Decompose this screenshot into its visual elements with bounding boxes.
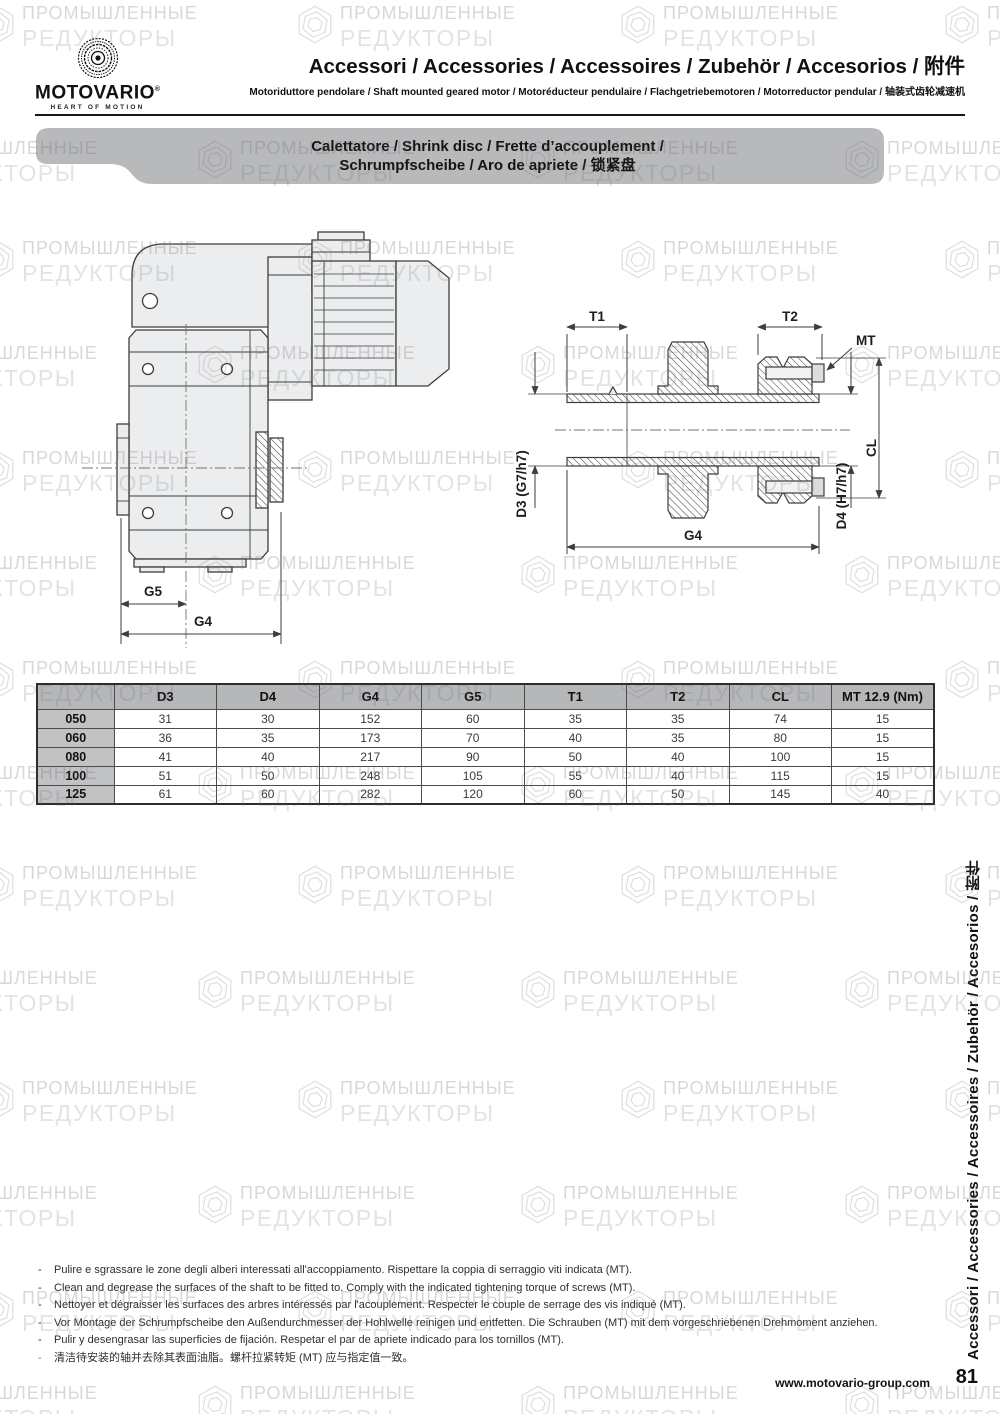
catalog-page: MOTOVARIO® HEART OF MOTION Accessori / A… xyxy=(0,0,1000,1414)
watermark-text-line1: ПРОМЫШЛЕННЫЕ xyxy=(22,1,198,25)
hexagon-spiral-icon xyxy=(841,966,883,1013)
watermark-text-line1: ПРОМЫШЛЕННЫЕ xyxy=(22,861,198,885)
dimension-value-cell: 40 xyxy=(832,785,935,804)
watermark-text-line1: ПРОМЫШЛЕННЫЕ xyxy=(663,861,839,885)
watermark-text-line2: РЕДУКТОРЫ xyxy=(22,1100,198,1127)
hexagon-spiral-icon xyxy=(294,861,336,908)
hexagon-spiral-icon xyxy=(0,1076,18,1123)
watermark: ПРОМЫШЛЕННЫЕРЕДУКТОРЫ xyxy=(941,1,1000,52)
dim-label-mt: MT xyxy=(856,333,876,348)
watermark-text-line2: РЕДУКТОРЫ xyxy=(0,990,98,1017)
page-subtitle: Motoriduttore pendolare / Shaft mounted … xyxy=(249,83,965,98)
dim-label-d3: D3 (G7/h7) xyxy=(514,450,529,518)
watermark: ПРОМЫШЛЕННЫЕРЕДУКТОРЫ xyxy=(0,1181,98,1232)
watermark-text-line1: ПРОМЫШЛЕННЫЕ xyxy=(22,1076,198,1100)
watermark-text-line1: ПРОМЫШЛЕННЫЕ xyxy=(987,1286,1000,1310)
watermark: ПРОМЫШЛЕННЫЕРЕДУКТОРЫ xyxy=(617,1076,839,1127)
mounting-notes: -Pulire e sgrassare le zone degli alberi… xyxy=(38,1262,918,1368)
hexagon-spiral-icon xyxy=(941,236,983,283)
note-line: -Pulire e sgrassare le zone degli alberi… xyxy=(38,1262,918,1280)
dimension-value-cell: 217 xyxy=(319,747,422,766)
table-header-row: D3D4G4G5T1T2CLMT 12.9 (Nm) xyxy=(37,684,934,709)
dimension-value-cell: 100 xyxy=(729,747,832,766)
watermark-text-line1: ПРОМЫШЛЕННЫЕ xyxy=(0,1381,98,1405)
watermark-text-line2: РЕДУКТОРЫ xyxy=(0,1405,98,1414)
hexagon-spiral-icon xyxy=(617,1076,659,1123)
hexagon-spiral-icon xyxy=(617,861,659,908)
dimension-value-cell: 50 xyxy=(524,747,627,766)
hexagon-spiral-icon xyxy=(517,1181,559,1228)
watermark-text-line2: РЕДУКТОРЫ xyxy=(987,1310,1000,1337)
table-corner-cell xyxy=(37,684,114,709)
dimension-value-cell: 15 xyxy=(832,709,935,728)
watermark: ПРОМЫШЛЕННЫЕРЕДУКТОРЫ xyxy=(0,966,98,1017)
watermark-text-line1: ПРОМЫШЛЕННЫЕ xyxy=(563,1181,739,1205)
page-number: 81 xyxy=(956,1366,978,1389)
watermark: ПРОМЫШЛЕННЫЕРЕДУКТОРЫ xyxy=(517,1381,739,1414)
note-line: -Vor Montage der Schrumpfscheibe den Auß… xyxy=(38,1315,918,1333)
watermark: ПРОМЫШЛЕННЫЕРЕДУКТОРЫ xyxy=(0,1076,198,1127)
dimension-value-cell: 74 xyxy=(729,709,832,728)
dimension-value-cell: 51 xyxy=(114,766,217,785)
watermark-text-line1: ПРОМЫШЛЕННЫЕ xyxy=(563,1381,739,1405)
table-row: 06036351737040358015 xyxy=(37,728,934,747)
watermark: ПРОМЫШЛЕННЫЕРЕДУКТОРЫ xyxy=(617,1,839,52)
column-header: MT 12.9 (Nm) xyxy=(832,684,935,709)
watermark-text-line2: РЕДУКТОРЫ xyxy=(663,1100,839,1127)
note-line: -清洁待安装的轴并去除其表面油脂。螺杆拉紧转矩 (MT) 应与指定值一致。 xyxy=(38,1350,918,1368)
column-header: D3 xyxy=(114,684,217,709)
dim-label-g5: G5 xyxy=(144,584,163,599)
banner-title-line1: Calettatore / Shrink disc / Frette d’acc… xyxy=(311,137,664,157)
watermark-text-line2: РЕДУКТОРЫ xyxy=(0,1205,98,1232)
note-dash: - xyxy=(38,1297,54,1315)
hexagon-spiral-icon xyxy=(0,1286,18,1333)
watermark-text-line2: РЕДУКТОРЫ xyxy=(887,1405,1000,1414)
row-size-label: 080 xyxy=(37,747,114,766)
dimension-value-cell: 40 xyxy=(627,747,730,766)
watermark: ПРОМЫШЛЕННЫЕРЕДУКТОРЫ xyxy=(194,1181,416,1232)
dim-label-g4-left: G4 xyxy=(194,614,213,629)
page-title: Accessori / Accessories / Accessoires / … xyxy=(249,54,965,80)
watermark-text-line2: РЕДУКТОРЫ xyxy=(987,1100,1000,1127)
column-header: G5 xyxy=(422,684,525,709)
watermark-text-line1: ПРОМЫШЛЕННЫЕ xyxy=(663,1,839,25)
dim-label-cl: CL xyxy=(864,439,879,457)
dimension-value-cell: 70 xyxy=(422,728,525,747)
watermark: ПРОМЫШЛЕННЫЕРЕДУКТОРЫ xyxy=(194,966,416,1017)
row-size-label: 050 xyxy=(37,709,114,728)
watermark-text-line1: ПРОМЫШЛЕННЫЕ xyxy=(987,1,1000,25)
note-dash: - xyxy=(38,1262,54,1280)
watermark-text-line2: РЕДУКТОРЫ xyxy=(240,1405,416,1414)
column-header: T2 xyxy=(627,684,730,709)
table-row: 1256160282120605014540 xyxy=(37,785,934,804)
dimension-value-cell: 55 xyxy=(524,766,627,785)
dimension-value-cell: 248 xyxy=(319,766,422,785)
note-text: Pulire e sgrassare le zone degli alberi … xyxy=(54,1264,632,1276)
note-line: -Pulir y desengrasar las superficies de … xyxy=(38,1332,918,1350)
watermark: ПРОМЫШЛЕННЫЕРЕДУКТОРЫ xyxy=(294,1,516,52)
watermark-text-line1: ПРОМЫШЛЕННЫЕ xyxy=(563,966,739,990)
dimension-value-cell: 145 xyxy=(729,785,832,804)
watermark-text-line2: РЕДУКТОРЫ xyxy=(563,990,739,1017)
dimension-value-cell: 31 xyxy=(114,709,217,728)
dimension-value-cell: 80 xyxy=(729,728,832,747)
dimension-value-cell: 120 xyxy=(422,785,525,804)
dimension-value-cell: 50 xyxy=(217,766,320,785)
hexagon-spiral-icon xyxy=(294,1,336,48)
row-size-label: 100 xyxy=(37,766,114,785)
header-divider xyxy=(35,114,965,116)
watermark: ПРОМЫШЛЕННЫЕРЕДУКТОРЫ xyxy=(294,861,516,912)
dimension-value-cell: 30 xyxy=(217,709,320,728)
watermark-text-line2: РЕДУКТОРЫ xyxy=(987,680,1000,707)
column-header: D4 xyxy=(217,684,320,709)
note-dash: - xyxy=(38,1350,54,1368)
watermark-text-line1: ПРОМЫШЛЕННЫЕ xyxy=(987,236,1000,260)
note-text: Pulir y desengrasar las superficies de f… xyxy=(54,1334,564,1346)
dimension-value-cell: 35 xyxy=(524,709,627,728)
hexagon-spiral-icon xyxy=(0,236,18,283)
watermark-text-line1: ПРОМЫШЛЕННЫЕ xyxy=(0,1181,98,1205)
dim-label-d4: D4 (H7/h7) xyxy=(834,463,849,530)
watermark-text-line1: ПРОМЫШЛЕННЫЕ xyxy=(987,656,1000,680)
gearmotor-side-view xyxy=(117,232,449,572)
hexagon-spiral-icon xyxy=(617,1,659,48)
hexagon-spiral-icon xyxy=(0,446,18,493)
motovario-logo: MOTOVARIO® HEART OF MOTION xyxy=(35,36,160,111)
dimension-value-cell: 282 xyxy=(319,785,422,804)
hexagon-spiral-icon xyxy=(941,656,983,703)
dimension-value-cell: 35 xyxy=(217,728,320,747)
note-dash: - xyxy=(38,1280,54,1298)
watermark-text-line1: ПРОМЫШЛЕННЫЕ xyxy=(0,966,98,990)
dimension-value-cell: 15 xyxy=(832,747,935,766)
technical-drawing: G5 G4 xyxy=(60,200,940,670)
watermark-text-line1: ПРОМЫШЛЕННЫЕ xyxy=(340,861,516,885)
dimension-value-cell: 60 xyxy=(422,709,525,728)
watermark: ПРОМЫШЛЕННЫЕРЕДУКТОРЫ xyxy=(517,1181,739,1232)
registered-mark: ® xyxy=(155,86,161,93)
watermark-text-line2: РЕДУКТОРЫ xyxy=(22,885,198,912)
hexagon-spiral-icon xyxy=(194,1381,236,1414)
watermark-text-line2: РЕДУКТОРЫ xyxy=(887,160,1000,187)
dimension-value-cell: 90 xyxy=(422,747,525,766)
watermark-text-line1: ПРОМЫШЛЕННЫЕ xyxy=(340,1,516,25)
hexagon-spiral-icon xyxy=(0,656,18,703)
column-header: G4 xyxy=(319,684,422,709)
dimension-value-cell: 50 xyxy=(627,785,730,804)
hexagon-spiral-icon xyxy=(941,1,983,48)
dimensions-table: D3D4G4G5T1T2CLMT 12.9 (Nm) 0503130152603… xyxy=(36,683,935,805)
brand-tagline: HEART OF MOTION xyxy=(35,104,160,111)
dimension-value-cell: 40 xyxy=(524,728,627,747)
note-line: -Nettoyer et dégraisser les surfaces des… xyxy=(38,1297,918,1315)
watermark: ПРОМЫШЛЕННЫЕРЕДУКТОРЫ xyxy=(0,1381,98,1414)
note-line: -Clean and degrease the surfaces of the … xyxy=(38,1280,918,1298)
footer-website: www.motovario-group.com xyxy=(775,1376,930,1390)
hexagon-spiral-icon xyxy=(517,1381,559,1414)
section-banner: Calettatore / Shrink disc / Frette d’acc… xyxy=(35,127,885,185)
watermark-text-line1: ПРОМЫШЛЕННЫЕ xyxy=(987,446,1000,470)
watermark-text-line2: РЕДУКТОРЫ xyxy=(663,25,839,52)
hexagon-spiral-icon xyxy=(194,1181,236,1228)
dimension-value-cell: 36 xyxy=(114,728,217,747)
note-dash: - xyxy=(38,1315,54,1333)
watermark-text-line1: ПРОМЫШЛЕННЫЕ xyxy=(240,966,416,990)
dimension-value-cell: 60 xyxy=(524,785,627,804)
table-row: 05031301526035357415 xyxy=(37,709,934,728)
hexagon-spiral-icon xyxy=(0,1,18,48)
sidebar-section-label: Accessori / Accessories / Accessoires / … xyxy=(963,815,984,1360)
dimension-value-cell: 40 xyxy=(217,747,320,766)
dimension-value-cell: 105 xyxy=(422,766,525,785)
watermark-text-line2: РЕДУКТОРЫ xyxy=(987,470,1000,497)
row-size-label: 060 xyxy=(37,728,114,747)
table-row: 1005150248105554011515 xyxy=(37,766,934,785)
watermark-text-line2: РЕДУКТОРЫ xyxy=(240,990,416,1017)
brand-name: MOTOVARIO® xyxy=(35,80,160,103)
watermark-text-line1: ПРОМЫШЛЕННЫЕ xyxy=(663,1076,839,1100)
dimension-value-cell: 15 xyxy=(832,728,935,747)
dimension-value-cell: 40 xyxy=(627,766,730,785)
note-text: Nettoyer et dégraisser les surfaces des … xyxy=(54,1299,686,1311)
note-text: 清洁待安装的轴并去除其表面油脂。螺杆拉紧转矩 (MT) 应与指定值一致。 xyxy=(54,1352,413,1364)
hexagon-spiral-icon xyxy=(941,446,983,493)
hexagon-spiral-icon xyxy=(0,861,18,908)
hexagon-spiral-icon xyxy=(294,1076,336,1123)
note-text: Vor Montage der Schrumpfscheibe den Auße… xyxy=(54,1317,878,1329)
dimension-value-cell: 173 xyxy=(319,728,422,747)
dim-label-g4-right: G4 xyxy=(684,528,703,543)
hexagon-spiral-icon xyxy=(841,1181,883,1228)
watermark: ПРОМЫШЛЕННЫЕРЕДУКТОРЫ xyxy=(294,1076,516,1127)
watermark-text-line2: РЕДУКТОРЫ xyxy=(340,1100,516,1127)
watermark-text-line2: РЕДУКТОРЫ xyxy=(340,25,516,52)
motovario-rosette-icon xyxy=(76,36,120,80)
dimension-value-cell: 41 xyxy=(114,747,217,766)
watermark-text-line1: ПРОМЫШЛЕННЫЕ xyxy=(240,1181,416,1205)
watermark-text-line1: ПРОМЫШЛЕННЫЕ xyxy=(987,1076,1000,1100)
watermark: ПРОМЫШЛЕННЫЕРЕДУКТОРЫ xyxy=(941,656,1000,707)
dimension-value-cell: 35 xyxy=(627,709,730,728)
watermark: ПРОМЫШЛЕННЫЕРЕДУКТОРЫ xyxy=(517,966,739,1017)
watermark-text-line1: ПРОМЫШЛЕННЫЕ xyxy=(987,861,1000,885)
watermark-text-line2: РЕДУКТОРЫ xyxy=(987,260,1000,287)
note-text: Clean and degrease the surfaces of the s… xyxy=(54,1282,635,1294)
watermark-text-line2: РЕДУКТОРЫ xyxy=(563,1405,739,1414)
watermark-text-line2: РЕДУКТОРЫ xyxy=(663,885,839,912)
hexagon-spiral-icon xyxy=(194,966,236,1013)
column-header: T1 xyxy=(524,684,627,709)
dim-label-t2: T2 xyxy=(782,309,798,324)
watermark: ПРОМЫШЛЕННЫЕРЕДУКТОРЫ xyxy=(194,1381,416,1414)
dim-label-t1: T1 xyxy=(589,309,605,324)
dimension-value-cell: 115 xyxy=(729,766,832,785)
watermark: ПРОМЫШЛЕННЫЕРЕДУКТОРЫ xyxy=(941,446,1000,497)
watermark-text-line2: РЕДУКТОРЫ xyxy=(340,885,516,912)
watermark-text-line2: РЕДУКТОРЫ xyxy=(563,1205,739,1232)
watermark: ПРОМЫШЛЕННЫЕРЕДУКТОРЫ xyxy=(617,861,839,912)
column-header: CL xyxy=(729,684,832,709)
dimension-value-cell: 35 xyxy=(627,728,730,747)
banner-title-line2: Schrumpfscheibe / Aro de apriete / 锁紧盘 xyxy=(339,156,635,176)
row-size-label: 125 xyxy=(37,785,114,804)
dimension-value-cell: 152 xyxy=(319,709,422,728)
watermark: ПРОМЫШЛЕННЫЕРЕДУКТОРЫ xyxy=(941,236,1000,287)
watermark-text-line2: РЕДУКТОРЫ xyxy=(987,25,1000,52)
table-row: 080414021790504010015 xyxy=(37,747,934,766)
dimension-value-cell: 15 xyxy=(832,766,935,785)
dimension-value-cell: 60 xyxy=(217,785,320,804)
watermark-text-line2: РЕДУКТОРЫ xyxy=(987,885,1000,912)
hexagon-spiral-icon xyxy=(517,966,559,1013)
watermark-text-line1: ПРОМЫШЛЕННЫЕ xyxy=(240,1381,416,1405)
dimension-value-cell: 61 xyxy=(114,785,217,804)
watermark-text-line1: ПРОМЫШЛЕННЫЕ xyxy=(887,136,1000,160)
watermark: ПРОМЫШЛЕННЫЕРЕДУКТОРЫ xyxy=(0,861,198,912)
note-dash: - xyxy=(38,1332,54,1350)
watermark-text-line1: ПРОМЫШЛЕННЫЕ xyxy=(340,1076,516,1100)
watermark-text-line2: РЕДУКТОРЫ xyxy=(240,1205,416,1232)
